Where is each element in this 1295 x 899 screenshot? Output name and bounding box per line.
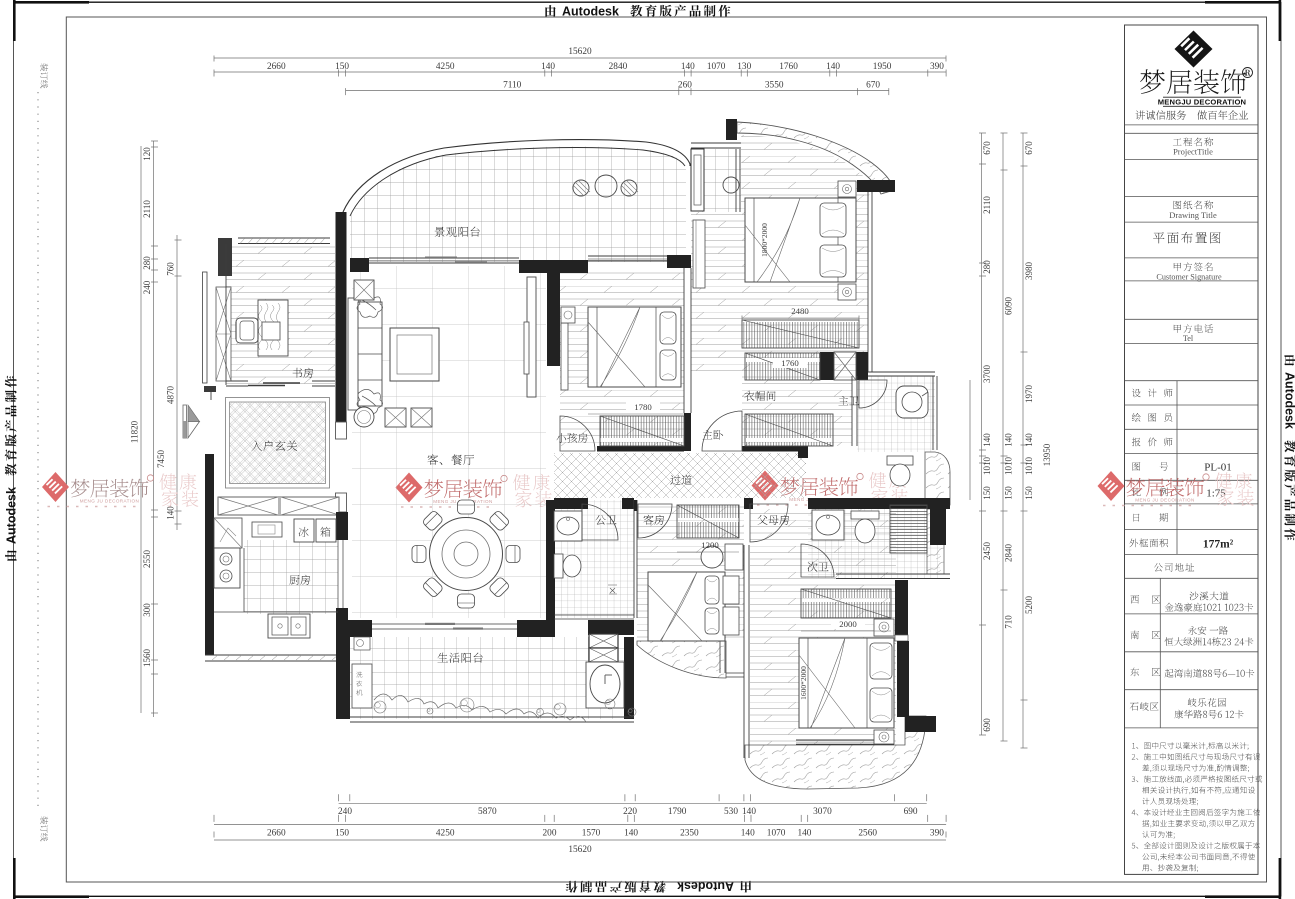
- svg-text:150: 150: [982, 486, 992, 500]
- svg-text:2840: 2840: [1004, 544, 1014, 563]
- svg-text:260: 260: [678, 81, 692, 91]
- svg-text:670: 670: [1024, 141, 1034, 155]
- svg-text:2350: 2350: [680, 829, 699, 839]
- svg-text:2660: 2660: [267, 829, 286, 839]
- svg-text:140: 140: [826, 62, 840, 72]
- svg-text:150: 150: [1004, 486, 1014, 500]
- svg-text:120: 120: [142, 147, 152, 161]
- svg-text:Customer Signature: Customer Signature: [1156, 272, 1222, 281]
- svg-text:6090: 6090: [1004, 297, 1014, 316]
- svg-text:5200: 5200: [1024, 596, 1034, 615]
- svg-text:1800*2000: 1800*2000: [760, 223, 769, 257]
- svg-text:11820: 11820: [130, 420, 140, 443]
- svg-text:1010: 1010: [982, 457, 992, 476]
- svg-text:3070: 3070: [813, 807, 832, 817]
- svg-text:690: 690: [904, 807, 918, 817]
- svg-text:670: 670: [866, 81, 880, 91]
- svg-text:15620: 15620: [568, 47, 592, 57]
- svg-text:1970: 1970: [1024, 385, 1034, 404]
- svg-text:1790: 1790: [668, 807, 687, 817]
- svg-text:2450: 2450: [982, 542, 992, 561]
- svg-text:1560: 1560: [142, 649, 152, 668]
- svg-text:7450: 7450: [156, 450, 166, 469]
- svg-text:240: 240: [142, 280, 152, 294]
- svg-text:1760: 1760: [779, 62, 798, 72]
- svg-text:1570: 1570: [582, 829, 601, 839]
- svg-text:15620: 15620: [568, 845, 592, 855]
- svg-text:140: 140: [1024, 433, 1034, 447]
- svg-text:530: 530: [724, 807, 738, 817]
- svg-text:280: 280: [982, 260, 992, 274]
- svg-text:280: 280: [142, 256, 152, 270]
- svg-text:760: 760: [166, 262, 176, 276]
- svg-text:2000: 2000: [839, 619, 857, 629]
- svg-text:690: 690: [982, 718, 992, 732]
- svg-text:13950: 13950: [1042, 443, 1052, 466]
- svg-text:390: 390: [930, 62, 944, 72]
- svg-text:1760: 1760: [781, 358, 799, 368]
- svg-text:2480: 2480: [791, 306, 809, 316]
- svg-text:Tel: Tel: [1183, 334, 1194, 343]
- svg-text:150: 150: [335, 62, 349, 72]
- svg-text:7110: 7110: [503, 81, 522, 91]
- svg-text:1780: 1780: [634, 402, 652, 412]
- svg-text:2550: 2550: [142, 550, 152, 569]
- svg-text:1010: 1010: [1004, 457, 1014, 476]
- svg-text:ProjectTitle: ProjectTitle: [1173, 147, 1213, 157]
- svg-text:Drawing Title: Drawing Title: [1169, 210, 1217, 220]
- svg-text:140: 140: [797, 829, 811, 839]
- svg-text:670: 670: [982, 141, 992, 155]
- svg-text:140: 140: [624, 829, 638, 839]
- svg-text:1200: 1200: [701, 540, 719, 550]
- svg-text:3550: 3550: [765, 81, 784, 91]
- svg-text:140: 140: [541, 62, 555, 72]
- svg-text:3700: 3700: [982, 365, 992, 384]
- svg-text:300: 300: [142, 603, 152, 617]
- svg-text:200: 200: [543, 829, 557, 839]
- svg-text:2110: 2110: [982, 196, 992, 214]
- svg-text:1070: 1070: [707, 62, 726, 72]
- svg-text:1070: 1070: [767, 829, 786, 839]
- svg-text:710: 710: [1004, 615, 1014, 629]
- svg-text:MENGJU DECORATION: MENGJU DECORATION: [1158, 97, 1246, 106]
- svg-text:1950: 1950: [873, 62, 892, 72]
- svg-text:140: 140: [982, 433, 992, 447]
- svg-text:1010: 1010: [1024, 457, 1034, 476]
- svg-text:390: 390: [930, 829, 944, 839]
- svg-text:220: 220: [623, 807, 637, 817]
- svg-text:130: 130: [737, 62, 751, 72]
- svg-text:4250: 4250: [436, 829, 455, 839]
- svg-text:1:75: 1:75: [1206, 488, 1226, 500]
- svg-text:140: 140: [166, 506, 176, 520]
- svg-text:2840: 2840: [609, 62, 628, 72]
- svg-text:2110: 2110: [142, 200, 152, 218]
- svg-text:150: 150: [335, 829, 349, 839]
- svg-text:2560: 2560: [858, 829, 877, 839]
- svg-text:140: 140: [741, 829, 755, 839]
- svg-text:150: 150: [1024, 486, 1034, 500]
- svg-text:5870: 5870: [478, 807, 497, 817]
- svg-text:4870: 4870: [166, 386, 176, 405]
- svg-text:177m²: 177m²: [1203, 539, 1234, 551]
- svg-text:240: 240: [338, 807, 352, 817]
- svg-text:3980: 3980: [1024, 262, 1034, 281]
- svg-text:1600*2000: 1600*2000: [799, 666, 808, 700]
- svg-text:140: 140: [1004, 433, 1014, 447]
- svg-text:4250: 4250: [436, 62, 455, 72]
- svg-text:PL-01: PL-01: [1204, 462, 1232, 474]
- svg-text:140: 140: [681, 62, 695, 72]
- svg-text:2660: 2660: [267, 62, 286, 72]
